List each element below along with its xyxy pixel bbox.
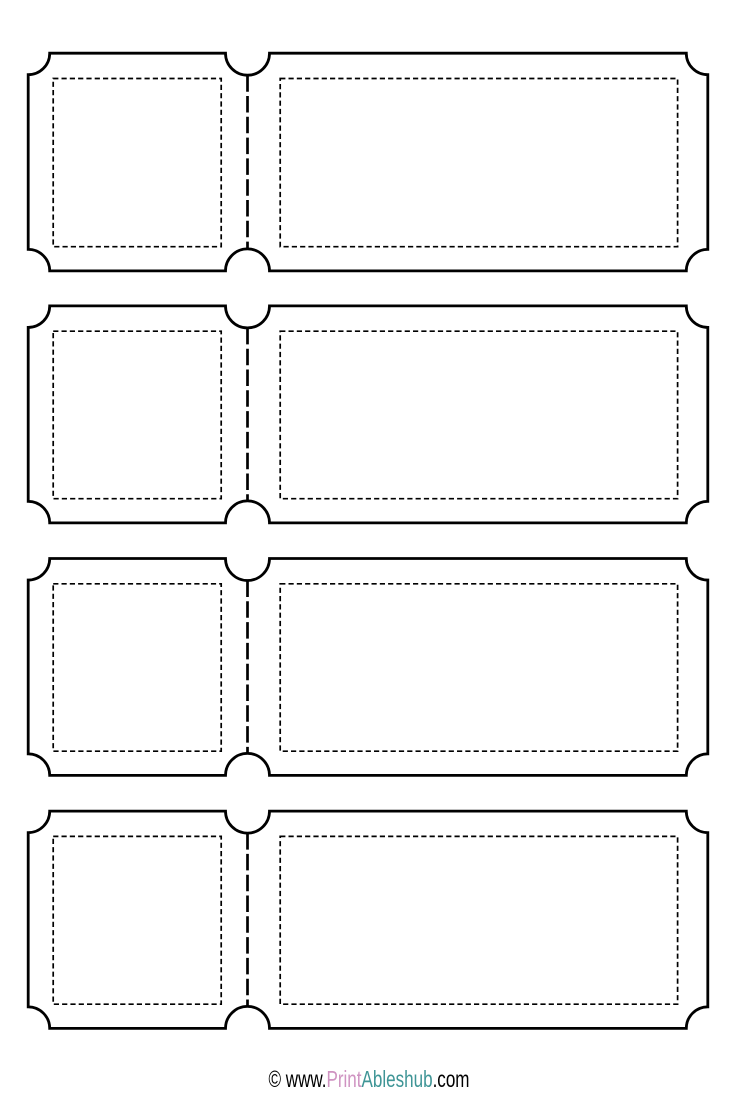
svg-text:© www.PrintAbleshub.com: © www.PrintAbleshub.com [269, 1066, 470, 1092]
